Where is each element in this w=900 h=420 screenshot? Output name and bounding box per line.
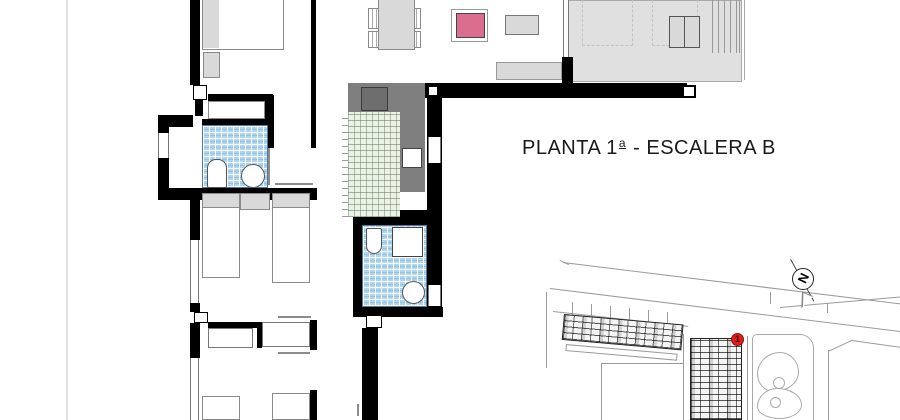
wall bbox=[190, 0, 200, 85]
plot-boundary bbox=[852, 340, 900, 348]
pillar bbox=[682, 85, 696, 98]
shower-tray bbox=[392, 227, 423, 257]
plot-boundary bbox=[601, 363, 683, 364]
washbasin bbox=[241, 164, 265, 188]
plan-title-ordinal: a bbox=[619, 136, 626, 150]
single-bed bbox=[272, 393, 310, 420]
pool-circle bbox=[770, 397, 781, 408]
wall-stub-line bbox=[357, 404, 359, 416]
bed-pillow bbox=[203, 0, 219, 48]
sideboard bbox=[505, 15, 539, 35]
window bbox=[190, 240, 199, 303]
sofa bbox=[496, 62, 562, 80]
terrace-awning-outline bbox=[582, 0, 633, 46]
terrace-stairs bbox=[712, 0, 740, 53]
plan-title-prefix: PLANTA 1 bbox=[522, 137, 618, 159]
wall bbox=[190, 350, 200, 358]
washbasin bbox=[402, 281, 425, 304]
window bbox=[190, 358, 199, 420]
location-marker: 1 bbox=[731, 333, 744, 346]
wall bbox=[310, 320, 317, 350]
plot-boundary bbox=[683, 334, 684, 420]
door-swing-line bbox=[275, 183, 313, 185]
door-swing-line bbox=[278, 316, 311, 318]
plan-title: PLANTA 1a - ESCALERA B bbox=[522, 136, 782, 162]
wall-facade-top bbox=[425, 83, 687, 98]
door-jamb-bedroom2 bbox=[194, 312, 208, 323]
wall-entry bbox=[362, 328, 378, 420]
road-edge bbox=[563, 262, 900, 304]
window bbox=[158, 133, 169, 158]
wall bbox=[190, 323, 200, 350]
wall bbox=[190, 190, 200, 240]
nightstand bbox=[240, 193, 270, 210]
window bbox=[428, 285, 441, 306]
plot-boundary bbox=[601, 363, 602, 420]
bed-pillow bbox=[273, 194, 309, 208]
entry-door-jamb bbox=[366, 315, 382, 328]
siteplan-building-block-b bbox=[690, 338, 742, 420]
toilet bbox=[366, 228, 382, 254]
pillar bbox=[427, 85, 439, 97]
floorplan-page: PLANTA 1a - ESCALERA B 1 N bbox=[0, 0, 900, 420]
plot-boundary bbox=[546, 292, 547, 368]
wall bbox=[158, 115, 193, 127]
kitchen-tiled-floor bbox=[348, 112, 400, 217]
closet bbox=[208, 328, 253, 348]
wardrobe bbox=[208, 101, 265, 119]
connector-line bbox=[770, 292, 771, 304]
wall-partition bbox=[311, 0, 316, 148]
connector-line bbox=[827, 303, 828, 313]
plot-boundary bbox=[828, 350, 829, 420]
plot-boundary bbox=[747, 336, 748, 420]
door-jamb-bedroom1 bbox=[193, 85, 207, 100]
terrace-edge-line bbox=[744, 0, 745, 80]
bed-pillow bbox=[203, 194, 239, 208]
kitchen-edge-ticks bbox=[342, 112, 348, 217]
single-bed bbox=[202, 396, 240, 420]
plan-title-suffix: - ESCALERA B bbox=[627, 137, 776, 159]
nightstand bbox=[203, 52, 220, 78]
wall bbox=[195, 100, 203, 116]
page-border-line bbox=[66, 0, 68, 420]
kitchen-sink-unit bbox=[361, 87, 388, 111]
toilet bbox=[207, 159, 227, 188]
window-terrace bbox=[563, 0, 569, 57]
kitchen-appliance bbox=[402, 148, 422, 168]
wall bbox=[353, 218, 362, 308]
wall bbox=[562, 57, 573, 83]
dining-table bbox=[378, 0, 415, 50]
closet bbox=[262, 322, 310, 347]
door-leaf-line bbox=[268, 148, 270, 185]
pink-table bbox=[456, 13, 485, 38]
plot-boundary bbox=[828, 340, 853, 352]
wall bbox=[310, 390, 317, 420]
door-swing-line bbox=[278, 352, 310, 354]
wall bbox=[208, 94, 273, 101]
terrace-cabinet bbox=[669, 16, 700, 48]
window bbox=[428, 137, 441, 163]
wall bbox=[190, 303, 200, 312]
